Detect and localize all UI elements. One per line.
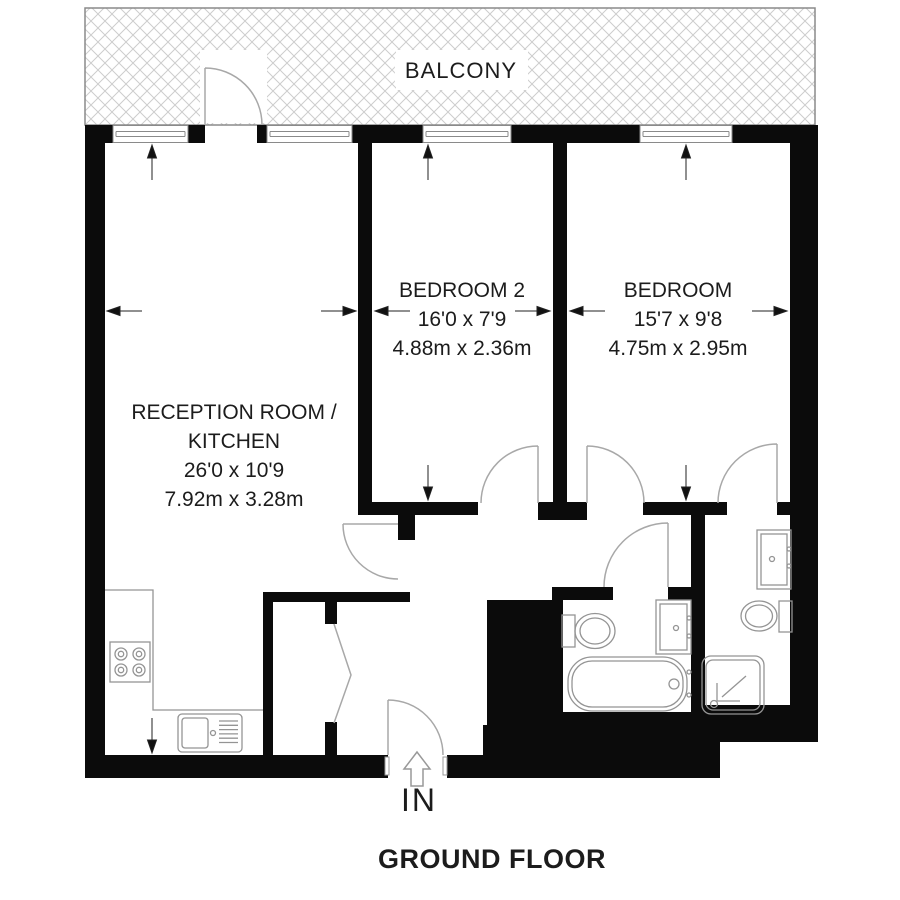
- floorplan-image: BALCONY RECEPTION ROOM / KITCHEN 26'0 x …: [0, 0, 900, 900]
- entrance-jamb: [385, 757, 389, 775]
- ensuite-door: [718, 444, 777, 503]
- bedroom-dim-metric: 4.75m x 2.95m: [609, 334, 748, 363]
- wall-bottom: [447, 755, 483, 778]
- wall-hall-stub: [398, 515, 415, 540]
- ensuite-basin-icon: [757, 530, 791, 589]
- entrance-arrow-icon: [404, 752, 430, 786]
- entrance-jamb: [443, 757, 447, 775]
- bedroom-name: BEDROOM: [609, 276, 748, 305]
- kitchen-sink-icon: [178, 714, 242, 752]
- bedroom2-name: BEDROOM 2: [393, 276, 532, 305]
- wall-bottom: [483, 725, 548, 778]
- bedroom2-label: BEDROOM 2 16'0 x 7'9 4.88m x 2.36m: [393, 276, 532, 363]
- reception-door: [343, 524, 398, 579]
- wall-closet-jamb: [325, 602, 337, 624]
- bedroom-dim-imperial: 15'7 x 9'8: [609, 305, 748, 334]
- hob-icon: [110, 642, 150, 682]
- balcony-label: BALCONY: [395, 56, 527, 86]
- window-reception: [113, 126, 188, 143]
- bedroom2-dim-imperial: 16'0 x 7'9: [393, 305, 532, 334]
- ensuite: [702, 530, 792, 714]
- wall-bottom-ensuite: [691, 705, 818, 742]
- reception-name-line2: KITCHEN: [131, 427, 336, 456]
- wall-top: [352, 125, 423, 143]
- wall-bottom: [85, 755, 388, 778]
- bedroom-door: [587, 446, 644, 503]
- wall-top: [188, 125, 205, 143]
- closet-bifold-door: [334, 624, 351, 723]
- reception-label: RECEPTION ROOM / KITCHEN 26'0 x 10'9 7.9…: [131, 398, 336, 514]
- entrance-door: [388, 700, 443, 755]
- wall-closet-top: [263, 592, 410, 602]
- wall-bathroom-top: [552, 587, 613, 600]
- wall-bedrooms-bottom: [777, 502, 790, 515]
- window-bedroom: [640, 126, 732, 143]
- wall-top: [732, 125, 818, 143]
- page-title: GROUND FLOOR: [378, 844, 606, 875]
- wall-bedrooms-bottom: [643, 502, 727, 515]
- bedroom2-door: [481, 446, 538, 503]
- kitchen-counter: [105, 590, 263, 710]
- wall-top: [85, 125, 113, 143]
- reception-name-line1: RECEPTION ROOM /: [131, 398, 336, 427]
- reception-dim-metric: 7.92m x 3.28m: [131, 485, 336, 514]
- wall-right: [790, 125, 818, 742]
- window-bedroom2: [423, 126, 511, 143]
- toilet-icon: [562, 614, 615, 649]
- bathtub-icon: [568, 657, 691, 711]
- entrance-label: IN: [401, 782, 437, 819]
- window-reception-2: [267, 126, 352, 143]
- bedroom2-dim-metric: 4.88m x 2.36m: [393, 334, 532, 363]
- wall-bathroom-ensuite: [691, 502, 705, 712]
- bathroom: [562, 600, 691, 711]
- wall-bedrooms-bottom: [372, 502, 478, 515]
- reception-dim-imperial: 26'0 x 10'9: [131, 456, 336, 485]
- wall-between-bedrooms: [553, 143, 567, 502]
- wall-left: [85, 125, 105, 778]
- wall-top: [257, 125, 267, 143]
- kitchen: [105, 590, 263, 752]
- wall-bedroom2-left: [358, 143, 372, 515]
- bathroom-door: [604, 523, 668, 587]
- wall-bathroom-top: [668, 587, 693, 600]
- ensuite-toilet-icon: [741, 601, 792, 632]
- wall-bedrooms-bottom: [538, 502, 587, 520]
- bedroom-label: BEDROOM 15'7 x 9'8 4.75m x 2.95m: [609, 276, 748, 363]
- wall-top: [511, 125, 640, 143]
- wall-closet-jamb: [325, 722, 337, 755]
- wall-reception-hall: [263, 602, 273, 757]
- wash-basin-icon: [656, 600, 691, 654]
- balcony-door-clearance: [200, 50, 267, 123]
